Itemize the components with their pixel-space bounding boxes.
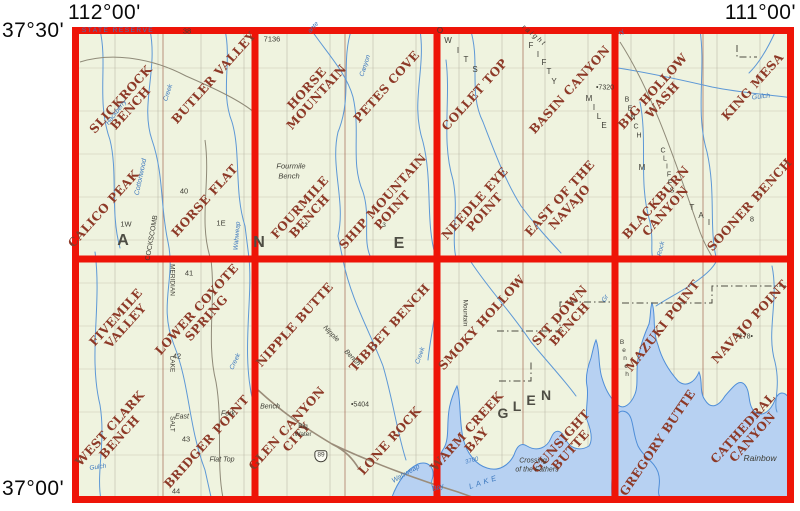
map-feature-label: B bbox=[620, 340, 624, 347]
map-feature-label: H bbox=[636, 133, 641, 140]
map-feature-label: East bbox=[175, 414, 189, 421]
map-feature-label: G bbox=[498, 406, 509, 420]
map-feature-label: Canyon bbox=[359, 54, 372, 77]
map-feature-label: I bbox=[708, 219, 710, 227]
map-feature-label: T bbox=[690, 204, 695, 212]
quad-name-mazuki-point: MAZUKI POINT bbox=[623, 278, 702, 374]
map-feature-label: 42 bbox=[173, 352, 181, 360]
map-feature-label: ante bbox=[307, 21, 320, 35]
map-feature-label: Rock bbox=[657, 241, 666, 257]
map-feature-label: 3 bbox=[382, 223, 386, 230]
map-feature-label: M bbox=[639, 164, 646, 172]
map-feature-label: E bbox=[394, 236, 405, 252]
map-feature-label: N bbox=[630, 115, 635, 122]
quad-name-sooner-bench: SOONER BENCH bbox=[705, 156, 795, 254]
quad-name-needle-eye-point: NEEDLE EYE POINT bbox=[439, 165, 520, 251]
map-feature-label: 1E bbox=[216, 219, 225, 227]
map-feature-label: W bbox=[444, 37, 452, 45]
map-feature-label: Mountain bbox=[461, 300, 468, 327]
map-feature-label: Creek bbox=[163, 84, 175, 103]
quad-name-gunsight-butte: GUNSIGHT BUTTE bbox=[530, 408, 603, 485]
map-feature-label: A bbox=[117, 233, 129, 249]
map-feature-label: LAKE bbox=[168, 356, 175, 373]
map-feature-label: Big bbox=[298, 424, 307, 431]
map-feature-label: 38 bbox=[183, 27, 191, 35]
map-feature-label: I bbox=[593, 104, 595, 112]
quad-name-horse-flat: HORSE FLAT bbox=[169, 162, 240, 239]
map-feature-label: 2 bbox=[304, 223, 308, 230]
map-feature-label: Creek bbox=[415, 347, 427, 366]
map-feature-label: I bbox=[537, 51, 539, 59]
map-feature-label: 8 bbox=[750, 215, 754, 223]
map-feature-label: Nipple bbox=[322, 324, 341, 343]
map-feature-label: N bbox=[253, 235, 265, 251]
map-feature-label: STATE RESERVE bbox=[82, 28, 154, 35]
quad-name-collet-top: COLLET TOP bbox=[440, 57, 511, 134]
map-feature-label: F bbox=[667, 172, 671, 179]
map-feature-label: L bbox=[597, 113, 601, 121]
map-feature-label: Bay bbox=[431, 483, 445, 493]
map-feature-label: Bench bbox=[343, 348, 362, 367]
quad-name-ship-mountain-point: SHIP MOUNTAIN POINT bbox=[337, 151, 439, 260]
quad-name-west-clark-bench: WEST CLARK BENCH bbox=[73, 389, 157, 478]
quad-name-blackburn-canyon: BLACKBURN CANYON bbox=[620, 164, 702, 250]
map-feature-label: I bbox=[457, 47, 459, 55]
map-feature-label: C bbox=[633, 124, 638, 131]
map-feature-label: Rainbow bbox=[743, 454, 776, 463]
quad-name-big-hollow-wash: BIG HOLLOW WASH bbox=[616, 51, 700, 140]
map-feature-label: Wahweap bbox=[234, 221, 243, 250]
map-feature-label: n bbox=[623, 356, 627, 363]
map-feature-label: T bbox=[547, 68, 552, 76]
map-feature-label: 1W bbox=[120, 220, 131, 228]
quad-name-butler-valley: BUTLER VALLEY bbox=[169, 30, 258, 127]
quad-name-warm-creek-bay: WARM CREEK BAY bbox=[428, 390, 515, 483]
quad-name-petes-cove: PETES COVE bbox=[352, 49, 423, 126]
quad-name-gregory-butte: GREGORY BUTTE bbox=[618, 388, 699, 499]
map-feature-label: Cottonwood bbox=[134, 158, 149, 196]
map-feature-label: F bbox=[542, 59, 547, 67]
map-feature-label: h bbox=[625, 372, 629, 379]
map-feature-label: Y bbox=[551, 78, 556, 86]
map-feature-label: E bbox=[628, 106, 633, 113]
map-feature-label: ry bbox=[618, 29, 626, 37]
map-label-layer: SLICKROCK BENCHBUTLER VALLEYCALICO PEAKH… bbox=[0, 0, 800, 511]
map-feature-label: raight bbox=[520, 24, 547, 48]
quad-name-tibbet-bench: TIBBET BENCH bbox=[347, 282, 432, 375]
map-feature-label: F bbox=[529, 42, 534, 50]
quad-name-smoky-hollow: SMOKY HOLLOW bbox=[436, 273, 528, 373]
map-feature-label: 7136 bbox=[264, 35, 281, 43]
quad-name-glen-canyon-city: GLEN CANYON CITY bbox=[247, 384, 338, 481]
map-feature-label: 3700 bbox=[465, 456, 479, 465]
quad-name-lower-coyote-spring: LOWER COYOTE SPRING bbox=[153, 262, 251, 367]
map-feature-label: Creek bbox=[229, 353, 242, 371]
quad-name-king-mesa: KING MESA bbox=[720, 51, 787, 123]
map-feature-label: O bbox=[437, 27, 443, 35]
map-feature-label: e bbox=[622, 348, 626, 355]
map-feature-label: Flat Top bbox=[209, 457, 234, 464]
map-feature-label: Water bbox=[294, 432, 311, 439]
map-feature-label: L bbox=[513, 399, 522, 413]
map-feature-label: F bbox=[668, 180, 672, 187]
map-feature-label: Hackberry bbox=[105, 99, 128, 126]
quad-name-sit-down-bench: SIT DOWN BENCH bbox=[530, 283, 600, 357]
quad-name-fivemile-valley: FIVEMILE VALLEY bbox=[87, 286, 155, 357]
map-feature-label: N bbox=[541, 388, 551, 402]
map-feature-label: •5404 bbox=[351, 402, 369, 409]
map-feature-label: Wahweap bbox=[391, 463, 421, 485]
map-feature-label: S bbox=[472, 66, 477, 74]
quad-name-lone-rock: LONE ROCK bbox=[356, 404, 424, 477]
quad-name-east-of-the-navajo: EAST OF THE NAVAJO bbox=[523, 158, 607, 248]
map-feature-label: I bbox=[666, 164, 668, 171]
map-feature-label: Crossing bbox=[519, 458, 547, 465]
map-feature-label: A bbox=[698, 212, 703, 220]
map-feature-label: T bbox=[464, 56, 469, 64]
map-feature-label: C bbox=[660, 148, 665, 155]
map-feature-label: 41 bbox=[185, 269, 193, 277]
map-feature-label: Fork bbox=[221, 411, 235, 418]
map-feature-label: L bbox=[663, 156, 667, 163]
map-feature-label: B bbox=[625, 97, 630, 104]
quad-name-cathedral-canyon: CATHEDRAL CANYON bbox=[708, 391, 787, 475]
map-feature-label: 43 bbox=[182, 435, 190, 443]
quad-name-basin-canyon: BASIN CANYON bbox=[527, 43, 613, 136]
map-feature-label: Bench bbox=[278, 172, 299, 180]
map-feature-label: LAKE bbox=[468, 474, 500, 491]
map-feature-label: E bbox=[601, 122, 606, 130]
map-feature-label: SALT bbox=[168, 416, 175, 432]
quad-name-fourmile-bench: FOURMILE BENCH bbox=[269, 174, 341, 250]
map-feature-label: S bbox=[670, 188, 675, 195]
map-feature-label: 7178• bbox=[735, 334, 753, 341]
map-feature-label: Bench bbox=[260, 404, 280, 411]
map-feature-label: Gulch bbox=[752, 93, 771, 102]
map-feature-label: Fourmile bbox=[276, 162, 305, 170]
map-feature-label: Gr bbox=[601, 294, 610, 304]
map-feature-label: M bbox=[586, 95, 593, 103]
quad-name-slickrock-bench: SLICKROCK BENCH bbox=[87, 63, 164, 145]
quad-name-calico-peak: CALICO PEAK bbox=[66, 168, 142, 251]
route-89-shield: 89 bbox=[314, 450, 327, 462]
map-feature-label: •7320 bbox=[596, 85, 614, 92]
quad-name-bridger-point: BRIDGER POINT bbox=[162, 393, 252, 491]
quad-name-nipple-butte: NIPPLE BUTTE bbox=[254, 280, 336, 369]
map-feature-label: Gulch bbox=[89, 464, 107, 473]
map-feature-label: of the Fathers bbox=[515, 467, 558, 474]
map-feature-label: 44 bbox=[172, 487, 180, 495]
map-feature-label: c bbox=[624, 364, 627, 371]
quad-index-map-page: 112°00' 111°00' 37°30' 37°00' bbox=[0, 0, 800, 511]
map-feature-label: E bbox=[526, 393, 535, 407]
map-feature-label: COCKSCOMB bbox=[145, 215, 160, 261]
quad-name-navajo-point: NAVAJO POINT bbox=[709, 278, 790, 366]
quad-name-horse-mountain: HORSE MOUNTAIN bbox=[275, 54, 349, 133]
map-feature-label: 40 bbox=[180, 187, 188, 195]
map-feature-label: MERIDIAN bbox=[168, 264, 175, 296]
